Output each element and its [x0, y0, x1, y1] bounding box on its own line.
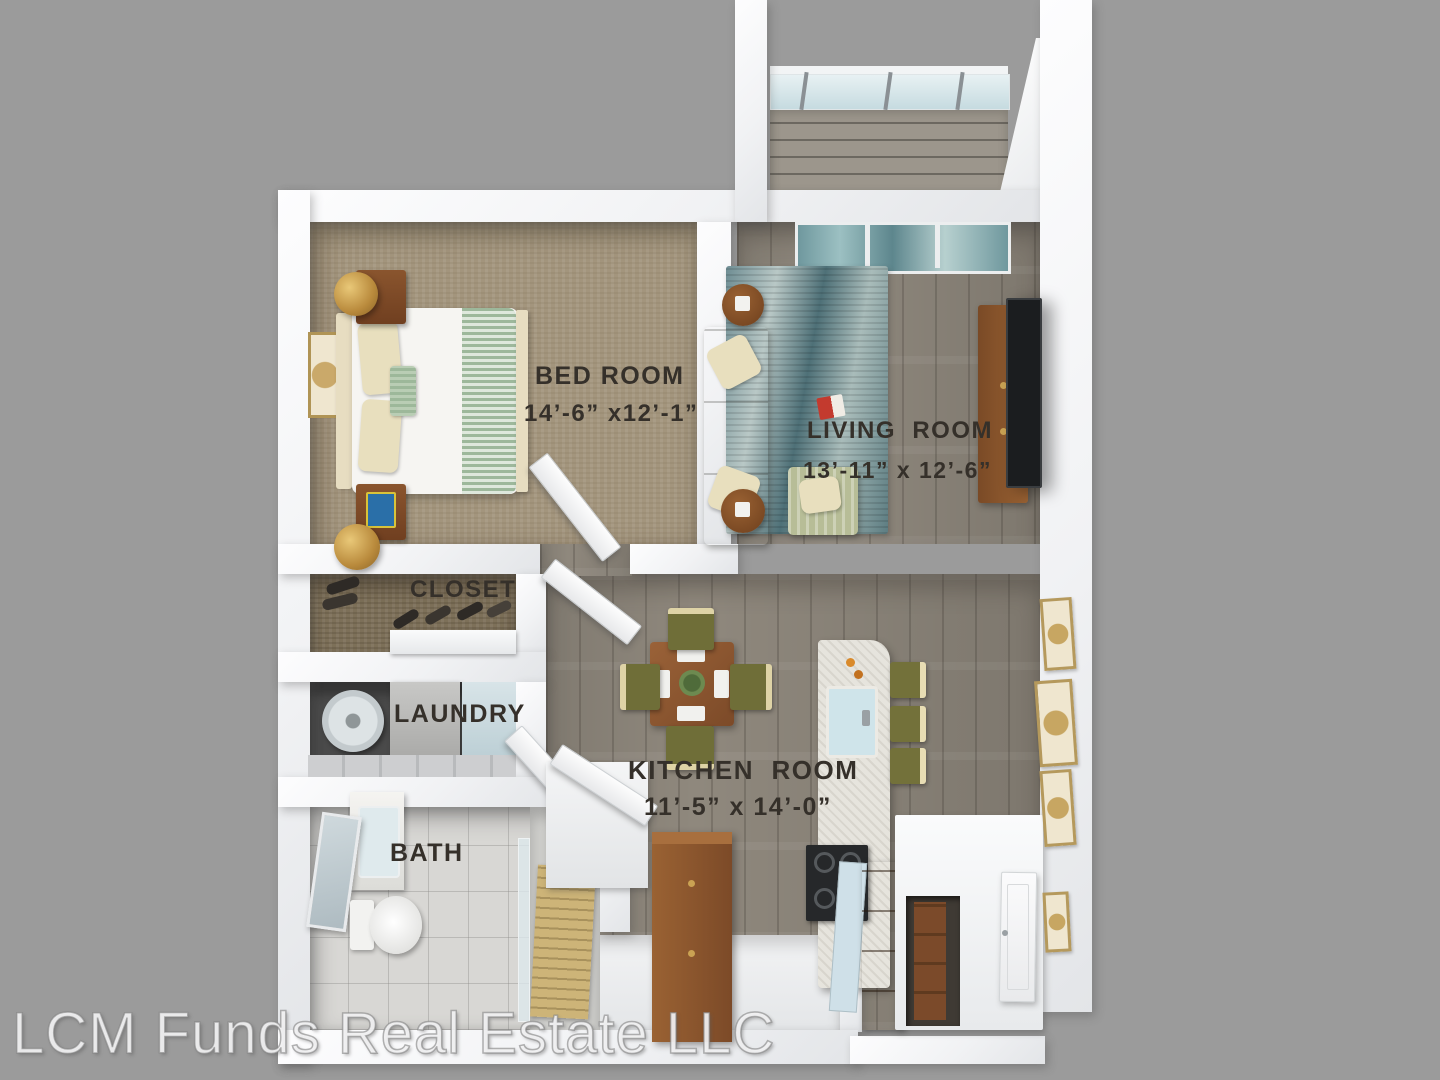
bedroom-dimensions: 14’-6” x12’-1” [524, 402, 698, 426]
closet-shelf [390, 630, 516, 654]
fruit-icon [854, 670, 863, 679]
laundry-tile-strip [308, 755, 516, 777]
wall-closet-laundry [278, 652, 546, 682]
bar-stool [890, 706, 926, 742]
bed-runner-blanket [462, 308, 516, 494]
burner-icon [814, 852, 835, 873]
faucet-icon [862, 710, 870, 726]
wall-closet-right [516, 574, 546, 654]
bar-stool [890, 662, 926, 698]
door-handle-icon [1002, 930, 1008, 936]
toilet-bowl [370, 896, 422, 954]
niche-shelf-unit [914, 902, 946, 1020]
watermark: LCM Funds Real Estate LLC [12, 1000, 775, 1067]
wall-top [278, 190, 1040, 222]
wall-bottom-right [850, 1036, 1045, 1064]
bedroom-label: BED ROOM [535, 364, 685, 389]
fruit-icon [846, 658, 855, 667]
candle-icon [735, 502, 750, 517]
table-lamp-icon [334, 272, 378, 316]
sideboard-handle-icon [688, 950, 695, 957]
table-lamp-icon [334, 524, 380, 570]
table-centerpiece-plant-icon [679, 670, 705, 696]
bed-accent-pillow [390, 366, 416, 416]
placemat [677, 706, 705, 721]
burner-icon [814, 888, 835, 909]
wall-art-frame [1040, 597, 1077, 671]
book-on-nightstand [366, 492, 396, 528]
sideboard-handle-icon [688, 880, 695, 887]
floorplan-image: BED ROOM 14’-6” x12’-1” LIVING ROOM 13’-… [0, 0, 1440, 1080]
wall-left [278, 190, 310, 1064]
entry-door-panel-line [1007, 884, 1029, 990]
bar-stool [890, 748, 926, 784]
wall-right [1040, 0, 1092, 1012]
wall-bedroom-bottom-right [630, 544, 738, 574]
glass-door-frame-bar [935, 222, 940, 268]
living-room-dimensions: 13’-11” x 12’-6” [803, 459, 992, 482]
wall-art-frame [1034, 679, 1078, 767]
bath-label: BATH [390, 841, 464, 866]
island-sink [826, 686, 878, 758]
glass-door-frame-bar [865, 222, 870, 268]
dining-chair [620, 664, 660, 710]
balcony-deck [770, 106, 1008, 192]
dining-chair [668, 608, 714, 650]
washer-icon [322, 690, 384, 752]
candle-icon [735, 296, 750, 311]
wall-art-frame [1039, 769, 1076, 847]
tv-screen [1006, 298, 1042, 488]
bed-headboard [336, 313, 352, 489]
placemat [714, 670, 729, 698]
living-room-label: LIVING ROOM [807, 419, 993, 443]
dining-chair [730, 664, 772, 710]
shower-glass-panel [518, 838, 530, 1022]
closet-label: CLOSET [410, 578, 516, 602]
laundry-label: LAUNDRY [394, 702, 526, 727]
kitchen-dimensions: 11’-5” x 14’-0” [644, 795, 832, 820]
wall-bedroom-bottom-left [278, 544, 540, 574]
wall-laundry-bath [278, 777, 560, 807]
kitchen-label: KITCHEN ROOM [628, 757, 858, 783]
wall-balcony-left [735, 0, 767, 222]
wall-art-frame [1042, 891, 1071, 952]
